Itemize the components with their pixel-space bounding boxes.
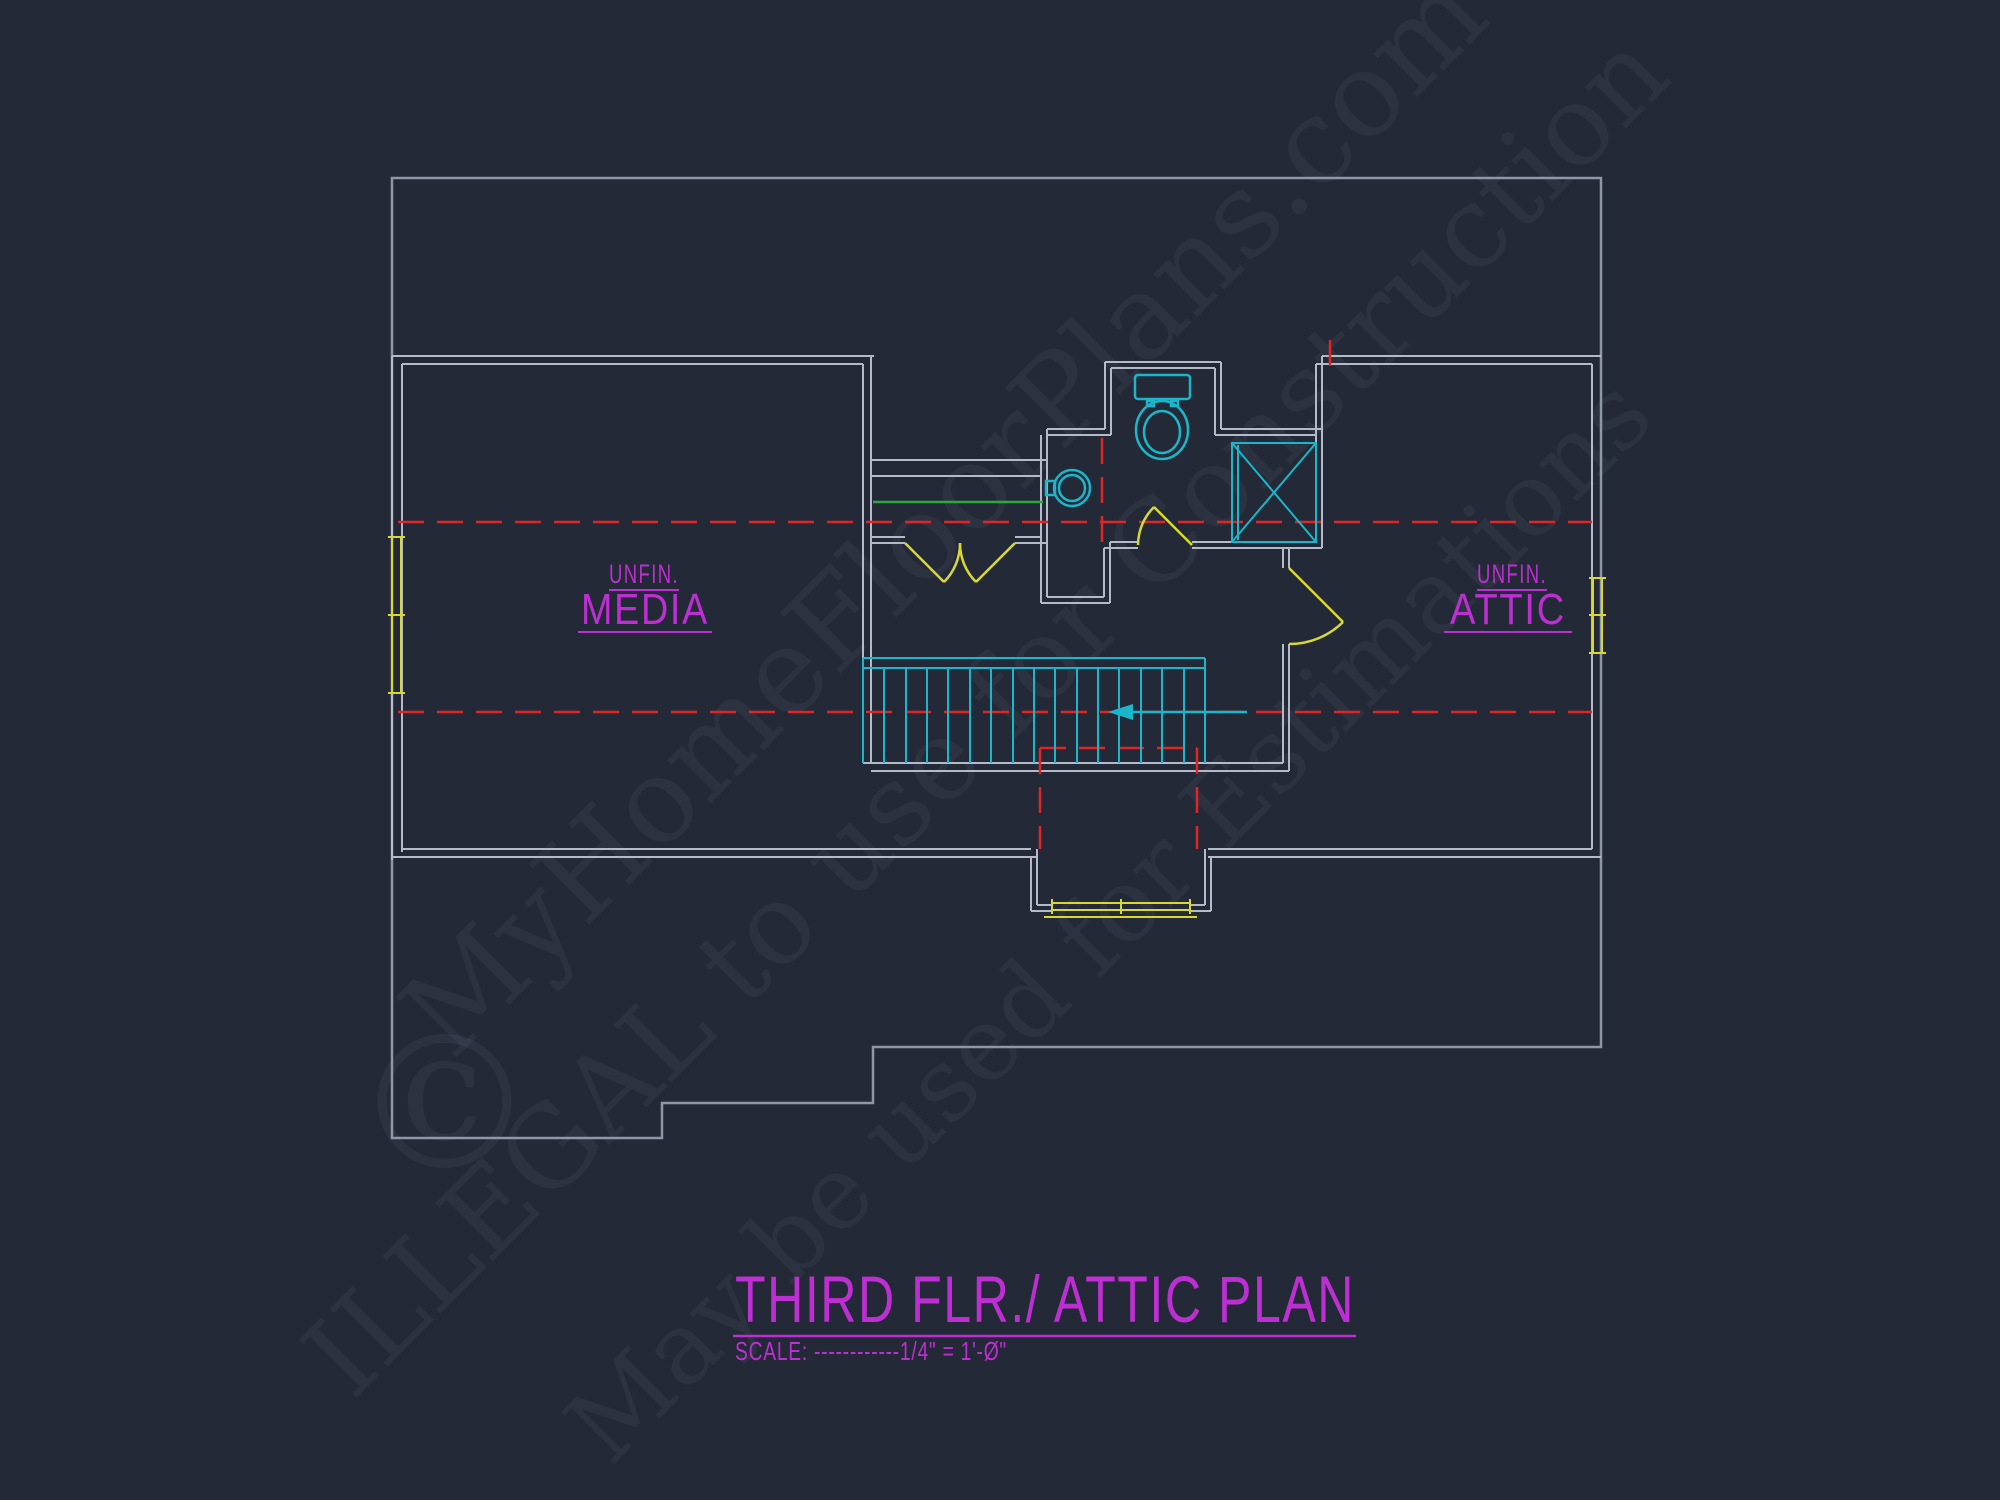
attic-label-main: ATTIC bbox=[1450, 585, 1566, 634]
plan-title: THIRD FLR./ ATTIC PLAN bbox=[735, 1262, 1355, 1336]
watermark-copyright: © bbox=[352, 996, 537, 1212]
scale-note: SCALE: ------------1/4" = 1'-Ø" bbox=[735, 1336, 1007, 1366]
plan-canvas: MyHomeFloorPlans.com ILLEGAL to use for … bbox=[0, 0, 2000, 1500]
floor-plan-svg: MyHomeFloorPlans.com ILLEGAL to use for … bbox=[0, 0, 2000, 1500]
media-label-main: MEDIA bbox=[581, 585, 709, 634]
